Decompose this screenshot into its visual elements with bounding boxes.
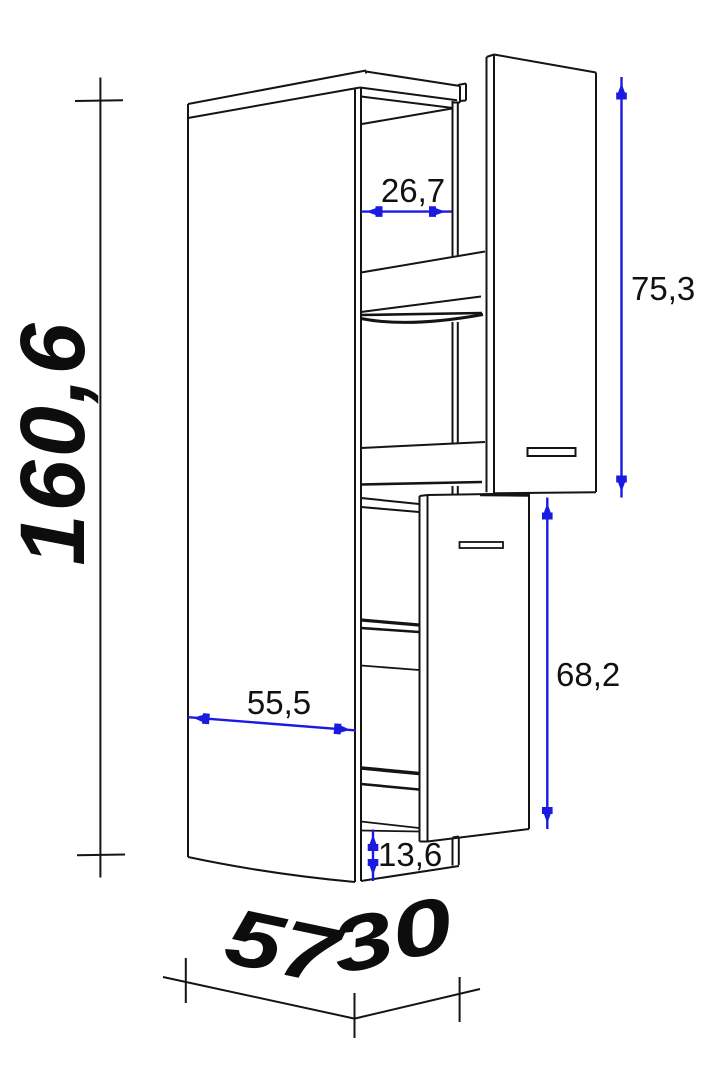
svg-text:26,7: 26,7	[381, 172, 445, 209]
svg-text:160,6: 160,6	[2, 320, 104, 565]
svg-text:55,5: 55,5	[247, 684, 311, 721]
svg-text:75,3: 75,3	[631, 270, 695, 307]
svg-text:68,2: 68,2	[556, 656, 620, 693]
svg-text:13,6: 13,6	[378, 836, 442, 873]
